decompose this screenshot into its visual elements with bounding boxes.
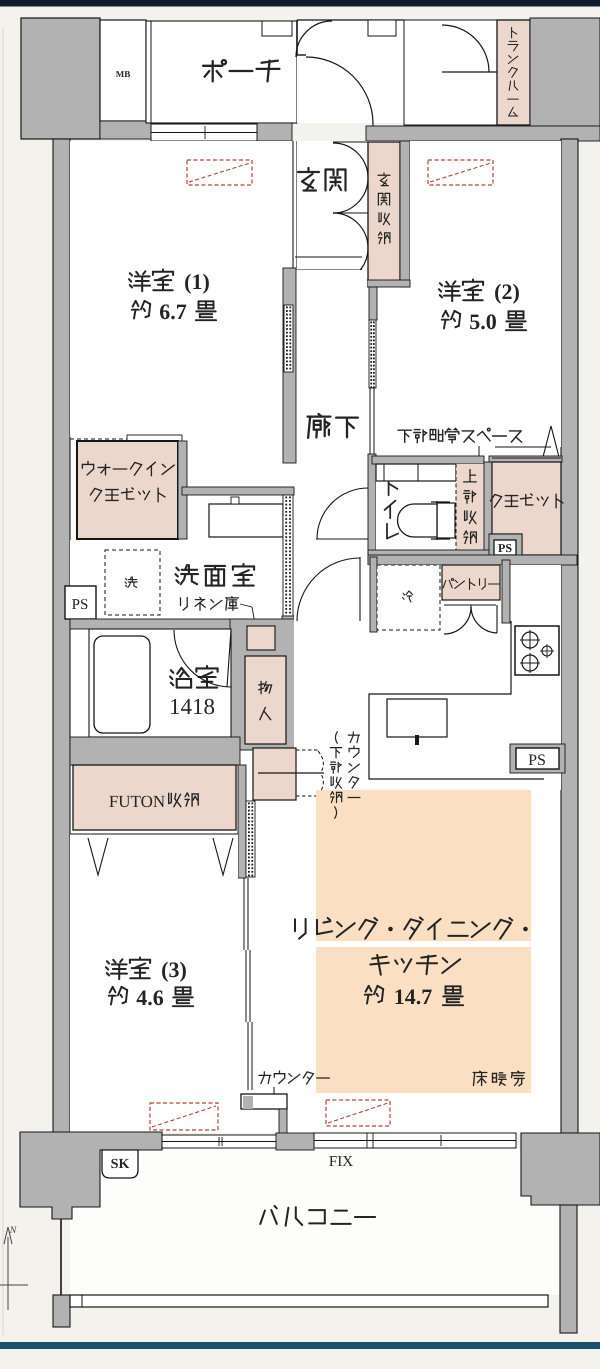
- svg-text:FUTON: FUTON: [109, 792, 165, 811]
- svg-text:4.6: 4.6: [136, 985, 164, 1010]
- svg-text:1418: 1418: [169, 694, 215, 719]
- svg-text:14.7: 14.7: [394, 984, 433, 1009]
- svg-text:MB: MB: [116, 69, 131, 79]
- svg-text:FIX: FIX: [329, 1154, 353, 1170]
- svg-text:(3): (3): [161, 957, 187, 982]
- svg-text:(1): (1): [184, 269, 210, 294]
- svg-text:PS: PS: [498, 541, 512, 555]
- svg-text:PS: PS: [72, 597, 89, 613]
- svg-text:(2): (2): [494, 279, 520, 304]
- svg-text:N: N: [9, 1225, 18, 1236]
- svg-text:PS: PS: [528, 752, 546, 769]
- svg-text:5.0: 5.0: [469, 309, 497, 334]
- svg-text:6.7: 6.7: [159, 299, 187, 324]
- svg-text:SK: SK: [111, 1157, 130, 1172]
